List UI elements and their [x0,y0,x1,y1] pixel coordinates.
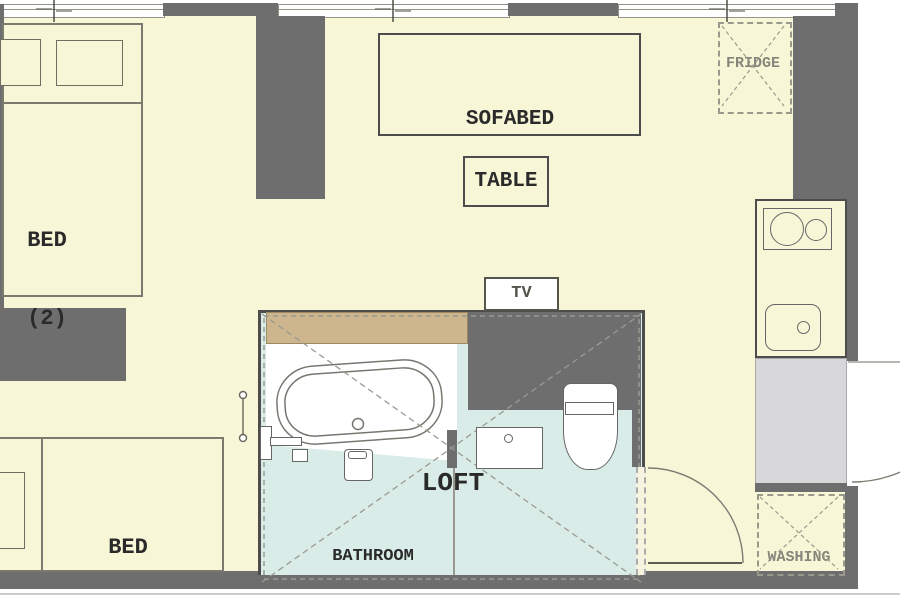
entry-threshold [755,483,847,492]
table-label: TABLE [463,170,549,195]
bathroom-wall-stub [447,430,457,468]
bath-stool-top [348,451,367,459]
kitchen-sink-drain [797,321,810,334]
top-wall-corner [835,3,858,16]
bed-2-pillow-right [56,40,123,86]
bath-stool [344,449,373,481]
bed-2-label: BED (2) [7,176,87,384]
kitchen-sink [765,304,821,351]
entry-floor [755,358,847,484]
window-1-glass-line [1,9,164,10]
top-wall-segment-2 [508,3,618,16]
bathroom-label: BATHROOM [318,547,428,567]
bed-2-headboard-line [4,102,141,104]
entrance-door-arc [852,447,900,482]
toilet [563,383,618,470]
top-wall-segment-1 [163,3,278,16]
washing-machine-label-line1: WASHING [757,549,841,567]
sofabed-label-name: SOFABED [420,108,600,133]
window-3-glass-line [619,9,836,10]
bed-1-headboard-line [41,439,43,570]
loft-label: LOFT [408,468,498,499]
floor-plan: BED (2) SOFABED (1) TABLE FRIDGE WASHING… [0,0,900,600]
loft-block: LOFT BATHROOM [258,310,645,588]
bath-faucet-bar [270,437,302,446]
loft-closet [266,312,468,344]
bath-faucet-knob [292,449,308,462]
tv-label: TV [484,284,559,304]
toilet-tank-band [565,402,614,415]
stove-burner-small [805,219,827,241]
bathroom-entry-strip [636,467,646,575]
washbasin-drain [504,434,513,443]
right-wall-block [793,16,858,199]
wall-column [256,16,325,199]
loft-dark-strip [632,410,641,467]
kitchen-counter [755,199,847,358]
window-1 [0,4,165,18]
bed-2-label-capacity: (2) [7,306,87,332]
right-wall-lower [845,486,858,572]
bed-2-label-name: BED [7,228,87,254]
bed-1-label: BED (1) [68,483,188,600]
washing-machine-label: WASHING MACHINE [757,514,841,600]
window-2-glass-line [279,9,509,10]
washbasin [476,427,543,469]
bed-1-pillow [0,472,25,549]
bed-1-label-name: BED [68,535,188,561]
stove-burner-large [770,212,804,246]
fridge-label: FRIDGE [718,55,788,73]
bed-2-pillow-left [0,39,41,86]
